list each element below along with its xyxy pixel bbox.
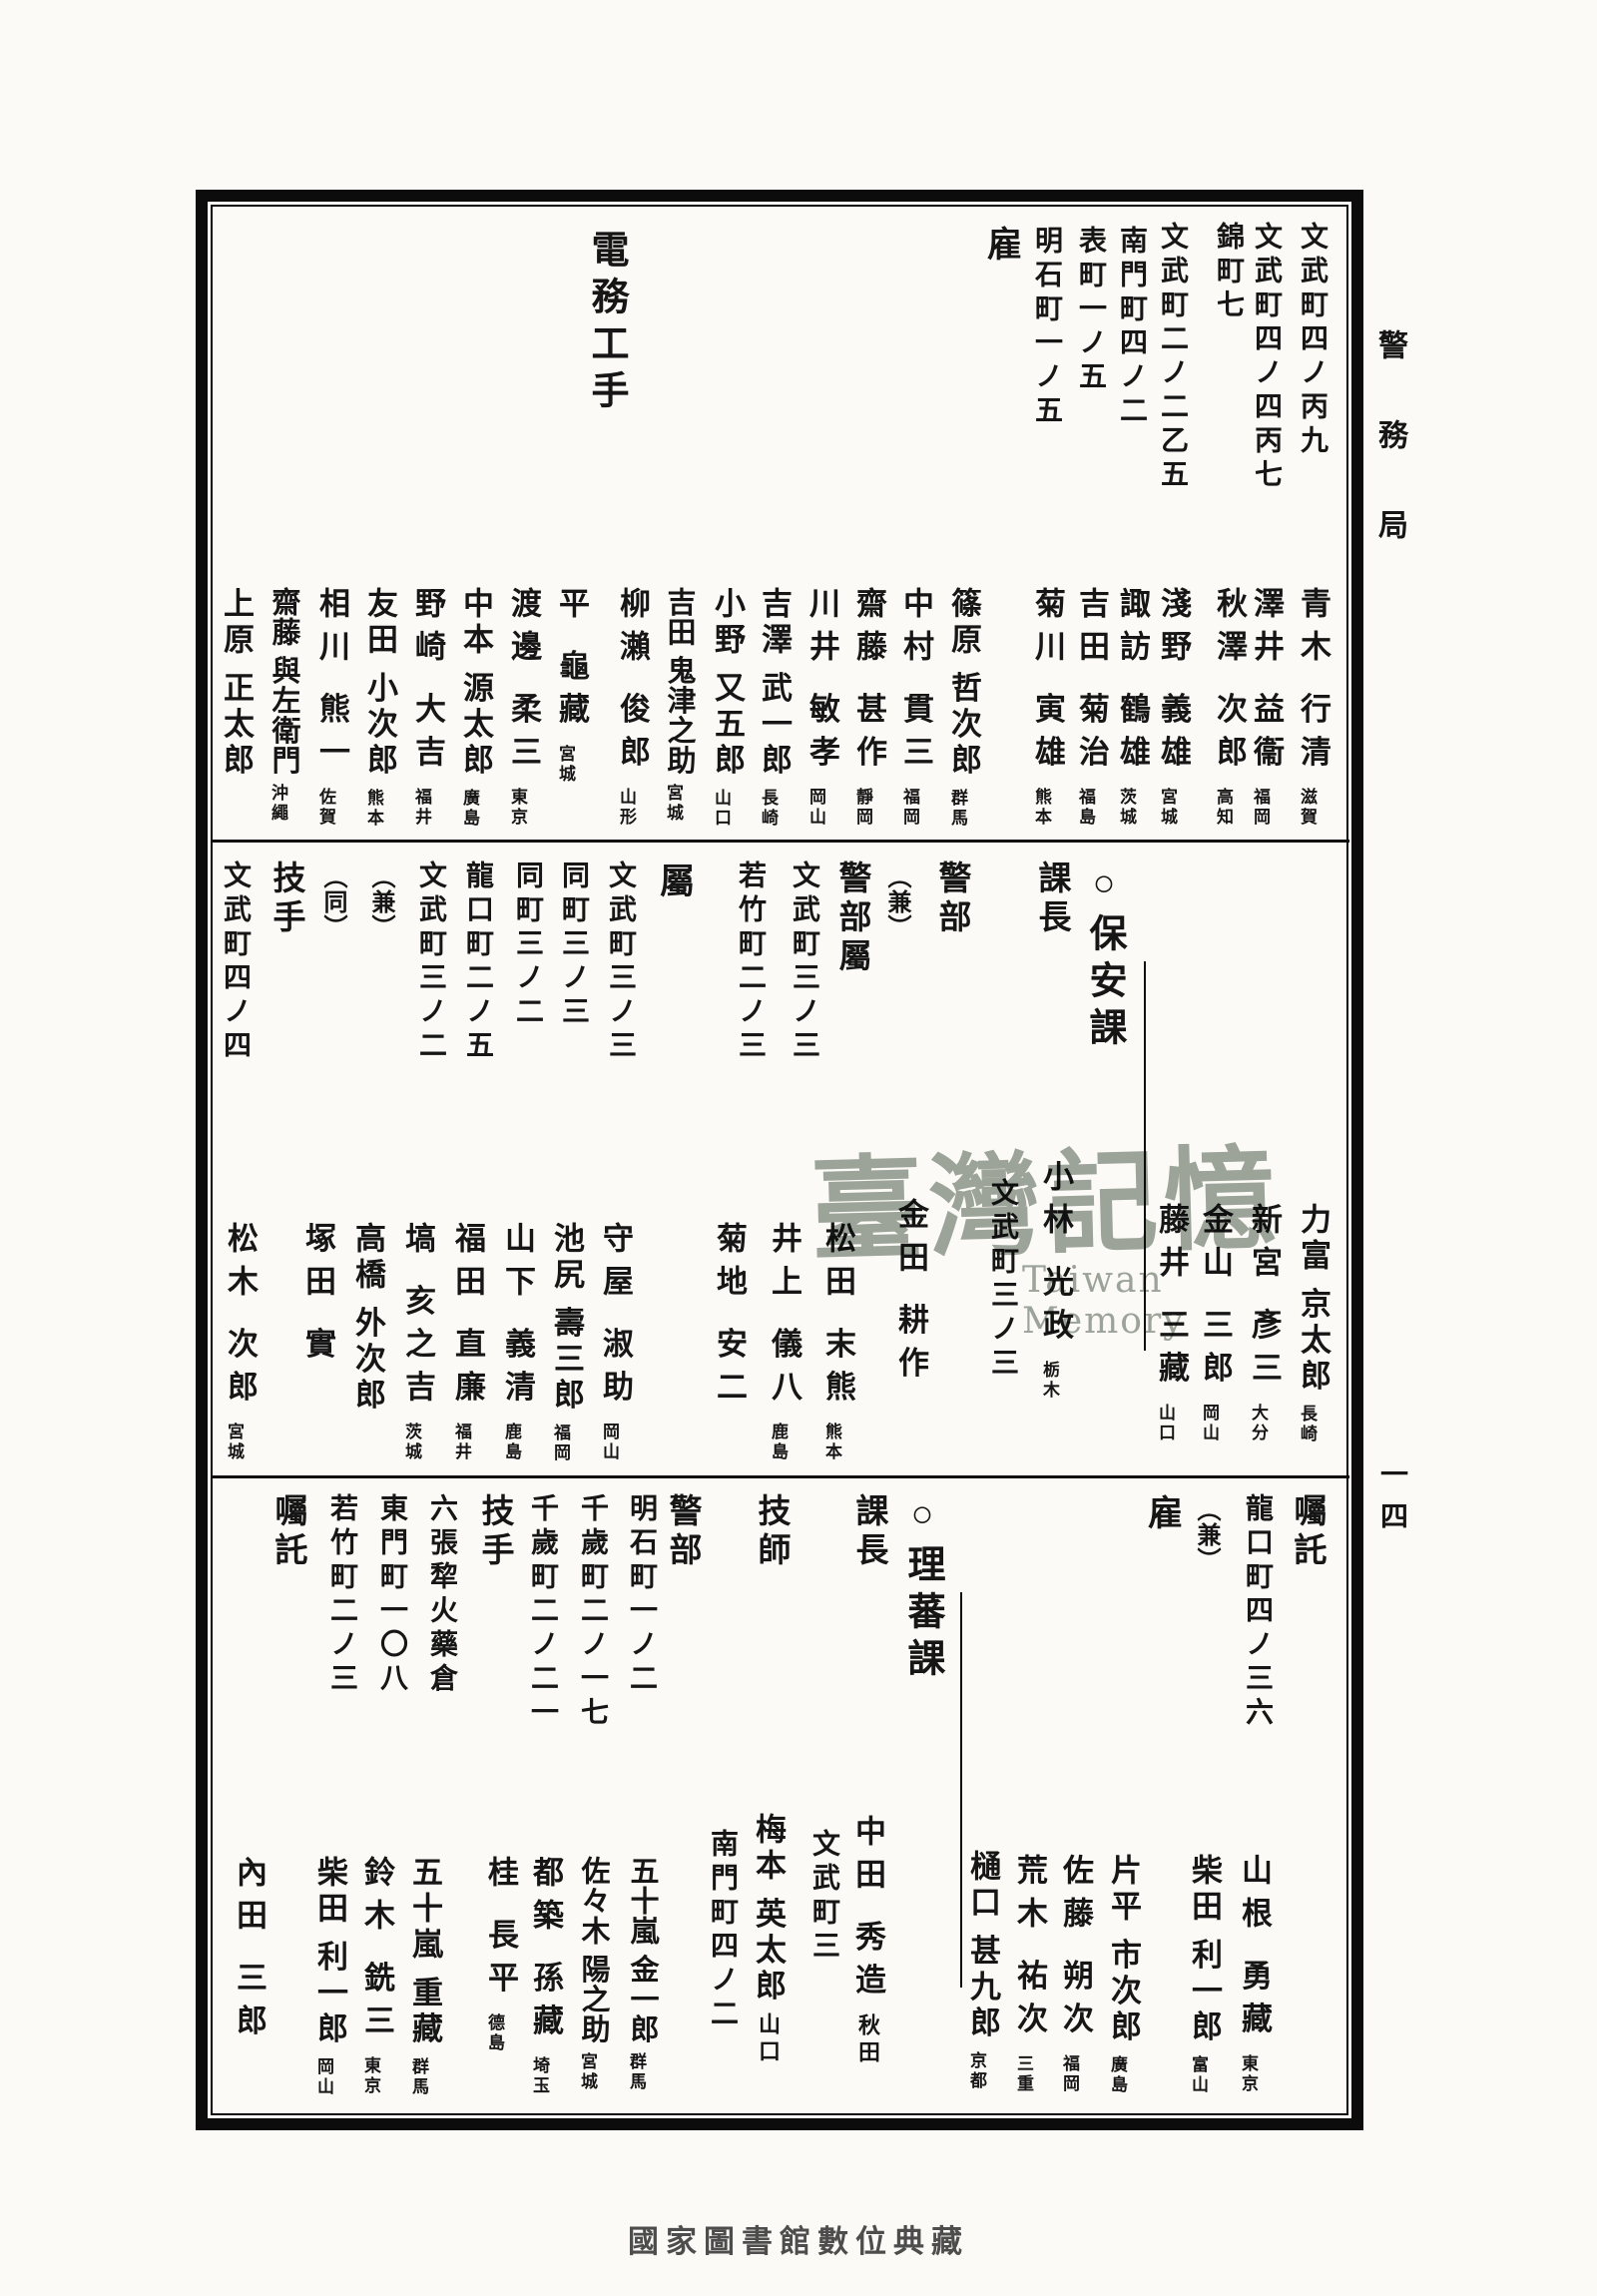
prefecture-annotation: 長崎 [1298, 1405, 1316, 1444]
prefecture-annotation: 京都 [967, 2051, 985, 2091]
prefecture-annotation: 東京 [361, 2056, 379, 2096]
prefecture-annotation: 福岡 [551, 1424, 569, 1463]
prefecture-annotation: 群馬 [627, 2052, 645, 2092]
section-leader-line [1144, 961, 1146, 1351]
person-name: 淺野 義雄宮城 [1158, 587, 1189, 828]
prefecture-annotation: 宮城 [578, 2052, 596, 2092]
duty-note: （兼） [368, 864, 392, 939]
person-name: 吉田 菊治福島 [1076, 587, 1107, 828]
person-name: 內田 三郎 [234, 1856, 265, 2047]
person-name: 桂 長平德島 [485, 1856, 516, 2053]
prefecture-annotation: 高知 [1214, 788, 1232, 828]
prefecture-annotation: 滋賀 [1298, 788, 1316, 828]
address-column: 東門町一〇八 [377, 1493, 405, 1697]
person-name: 梅本 英太郎山口 [753, 1813, 784, 2066]
address-column: 明石町一ノ五 [1032, 226, 1060, 429]
prefecture-annotation: 群馬 [409, 2057, 427, 2097]
person-name: 藤井 三藏山口 [1156, 1203, 1187, 1443]
person-name: 樋口 甚九郎京都 [967, 1850, 998, 2091]
prefecture-annotation: 福井 [452, 1423, 470, 1462]
person-name: 吉澤 武一郎長崎 [759, 587, 790, 829]
person-name: 力富 京太郎長崎 [1298, 1203, 1329, 1444]
person-name: 金田 耕作 [895, 1198, 926, 1390]
person-name: 柳瀨 俊郎山形 [617, 587, 648, 828]
person-name: 佐藤 朔次福岡 [1060, 1854, 1091, 2094]
prefecture-annotation: 宮城 [664, 784, 682, 824]
person-name: 五十嵐 重藏群馬 [409, 1856, 440, 2097]
prefecture-annotation: 靜岡 [853, 788, 871, 828]
person-name: 松木 次郎宮城 [225, 1222, 256, 1462]
prefecture-annotation: 廣島 [460, 789, 478, 829]
rank-header: 技手 [268, 861, 301, 938]
person-name: 篠原 哲次郎群馬 [948, 587, 979, 829]
prefecture-annotation: 岡山 [806, 788, 824, 828]
address-column: 錦町七 [1214, 222, 1242, 323]
person-name: 都築 孫藏埼玉 [530, 1856, 561, 2096]
prefecture-annotation: 熊本 [364, 789, 382, 829]
person-name: 平 龜藏宮城 [556, 587, 587, 785]
rank-header: 警部 [665, 1493, 698, 1571]
person-name: 金山 三郎岡山 [1200, 1203, 1231, 1443]
person-name: 小野 又五郎山口 [712, 587, 743, 829]
person-name: 上原 正太郎 [221, 587, 252, 780]
rank-header: 屬 [657, 862, 692, 897]
prefecture-annotation: 埼玉 [530, 2056, 548, 2096]
rank-header: 技師 [754, 1493, 787, 1571]
person-name: 諏訪 鶴雄茨城 [1117, 587, 1148, 828]
prefecture-annotation: 福島 [1076, 788, 1094, 828]
person-name: 中村 貫三福岡 [900, 587, 931, 828]
prefecture-annotation: 栃木 [1040, 1361, 1058, 1401]
person-name: 中本 源太郎廣島 [460, 587, 491, 829]
duty-note: （同） [320, 864, 344, 939]
prefecture-annotation: 佐賀 [316, 788, 334, 828]
address-column: 表町一ノ五 [1076, 226, 1104, 395]
person-name: 齋藤 甚作靜岡 [853, 587, 884, 828]
prefecture-annotation: 宮城 [556, 745, 574, 785]
address-column: 龍口町二ノ五 [463, 861, 491, 1064]
prefecture-annotation: 福岡 [900, 788, 918, 828]
person-name: 片平 市次郎廣島 [1108, 1854, 1139, 2095]
address-column: 文武町三ノ二 [416, 861, 444, 1064]
person-name: 佐々木 陽之助宮城 [578, 1856, 607, 2092]
address-column: 文武町三ノ三 [790, 861, 817, 1064]
page-number: 一四 [1371, 1459, 1411, 1543]
rank-header: 雇 [1145, 1494, 1180, 1529]
person-name: 山下 義清鹿島 [502, 1222, 533, 1462]
prefecture-annotation: 福岡 [1060, 2054, 1078, 2094]
person-name: 新宮 彥三大分 [1249, 1203, 1280, 1443]
row-divider [212, 1475, 1349, 1478]
person-name: 松田 末熊熊本 [822, 1222, 853, 1462]
prefecture-annotation: 岡山 [1200, 1404, 1218, 1443]
person-name: 小林 光政栃木 [1040, 1160, 1071, 1401]
row-divider [212, 840, 1349, 843]
address-column: 文武町四ノ四丙七 [1252, 222, 1280, 493]
prefecture-annotation: 長崎 [759, 789, 777, 829]
prefecture-annotation: 山口 [757, 2012, 779, 2066]
person-name: 井上 儀八鹿島 [769, 1222, 799, 1462]
person-name: 齋藤 與左衛門沖繩 [268, 587, 297, 824]
address-column: 南門町四ノ二 [1117, 226, 1145, 429]
prefecture-annotation: 福井 [412, 788, 430, 828]
person-name: 池尻 壽三郎福岡 [551, 1222, 582, 1463]
address-column: 南門町四ノ二 [708, 1829, 736, 2032]
address-column: 文武町二ノ二乙五 [1158, 222, 1186, 493]
address-column: 同町三ノ二 [513, 861, 541, 1030]
prefecture-annotation: 茨城 [402, 1423, 420, 1462]
person-name: 福田 直廉福井 [452, 1222, 483, 1462]
address-column: 千歲町二ノ一七 [578, 1493, 606, 1731]
scanned-page: 文武町四ノ丙九文武町四ノ四丙七錦町七文武町二ノ二乙五南門町四ノ二表町一ノ五明石町… [0, 0, 1597, 2296]
section-header: ○理蕃課 [903, 1493, 941, 1685]
prefecture-annotation: 山形 [617, 788, 635, 828]
prefecture-annotation: 東京 [508, 788, 526, 828]
address-column: 龍口町四ノ三六 [1243, 1493, 1271, 1731]
bureau-margin-label: 警務局 [1367, 329, 1411, 599]
person-name: 鈴木 銑三東京 [361, 1856, 392, 2096]
person-name: 柴田 利一郎富山 [1189, 1854, 1220, 2095]
person-name: 吉田 鬼津之助宮城 [664, 587, 693, 824]
person-name: 中田 秀造秋田 [852, 1815, 883, 2067]
rank-header: 囑託 [270, 1493, 303, 1571]
person-name: 渡邊 柔三東京 [508, 587, 539, 828]
person-name: 山根 勇藏東京 [1239, 1854, 1270, 2094]
prefecture-annotation: 廣島 [1108, 2055, 1126, 2095]
prefecture-annotation: 宮城 [225, 1423, 243, 1462]
person-name: 野崎 大吉福井 [412, 587, 443, 828]
prefecture-annotation: 山口 [712, 789, 730, 829]
rank-header: 囑託 [1290, 1493, 1323, 1571]
address-column: 文武町三ノ三 [988, 1178, 1016, 1382]
person-name: 柴田 利一郎岡山 [314, 1856, 345, 2097]
duty-note: （兼） [884, 864, 908, 939]
prefecture-annotation: 德島 [485, 2013, 503, 2053]
prefecture-annotation: 大分 [1249, 1404, 1267, 1443]
person-name: 荒木 祐次三重 [1014, 1854, 1045, 2094]
rank-header: 警部 [934, 861, 967, 938]
prefecture-annotation: 東京 [1239, 2054, 1257, 2094]
address-column: 明石町一ノ二 [627, 1493, 655, 1697]
person-name: 相川 熊一佐賀 [316, 587, 347, 828]
prefecture-annotation: 宮城 [1158, 788, 1176, 828]
person-name: 菊川 寅雄熊本 [1032, 587, 1063, 828]
prefecture-annotation: 沖繩 [268, 784, 286, 824]
prefecture-annotation: 熊本 [1032, 788, 1050, 828]
rank-header: 電務工手 [587, 230, 625, 417]
prefecture-annotation: 秋田 [856, 2013, 878, 2067]
person-name: 青木 行清滋賀 [1298, 587, 1329, 828]
library-caption: 國家圖書館數位典藏 [559, 2216, 1038, 2261]
address-column: 文武町三 [809, 1829, 837, 1965]
address-column: 千歲町二ノ二一 [528, 1493, 556, 1731]
prefecture-annotation: 群馬 [948, 789, 966, 829]
prefecture-annotation: 鹿島 [769, 1423, 787, 1462]
person-name: 菊地 安二 [714, 1222, 745, 1414]
address-column: 文武町三ノ三 [606, 861, 634, 1064]
rank-header: 技手 [477, 1493, 510, 1571]
prefecture-annotation: 福岡 [1251, 788, 1269, 828]
prefecture-annotation: 富山 [1189, 2055, 1207, 2095]
address-column: 文武町四ノ丙九 [1298, 222, 1326, 459]
person-name: 五十嵐 金一郎群馬 [627, 1856, 656, 2092]
rank-header: 課長 [1034, 861, 1067, 938]
section-leader-line [960, 1592, 962, 1988]
person-name: 塙 亥之吉茨城 [402, 1222, 433, 1462]
address-column: 文武町四ノ四 [221, 861, 249, 1064]
rank-header: 雇 [984, 226, 1019, 261]
prefecture-annotation: 熊本 [822, 1423, 840, 1462]
person-name: 澤井 益衞福岡 [1251, 587, 1282, 828]
prefecture-annotation: 山口 [1156, 1404, 1174, 1443]
section-header: ○保安課 [1085, 862, 1123, 1054]
address-column: 若竹町二ノ三 [327, 1493, 355, 1697]
address-column: 若竹町二ノ三 [736, 861, 764, 1064]
prefecture-annotation: 三重 [1014, 2054, 1032, 2094]
person-name: 高橋 外次郎 [352, 1222, 383, 1415]
prefecture-annotation: 茨城 [1117, 788, 1135, 828]
person-name: 友田 小次郎熊本 [364, 587, 395, 829]
person-name: 川井 敏孝岡山 [806, 587, 837, 828]
rank-header: 警部屬 [834, 861, 867, 977]
person-name: 塚田 實 [302, 1222, 333, 1371]
rank-header: 課長 [851, 1493, 884, 1571]
address-column: 六張犂火藥倉 [427, 1493, 455, 1697]
person-name: 秋澤 次郎高知 [1214, 587, 1245, 828]
address-column: 同町三ノ三 [559, 861, 587, 1030]
person-name: 守屋 淑助岡山 [600, 1222, 631, 1462]
duty-note: （兼） [1194, 1497, 1218, 1572]
prefecture-annotation: 鹿島 [502, 1423, 520, 1462]
prefecture-annotation: 岡山 [314, 2057, 332, 2097]
prefecture-annotation: 岡山 [600, 1423, 618, 1462]
